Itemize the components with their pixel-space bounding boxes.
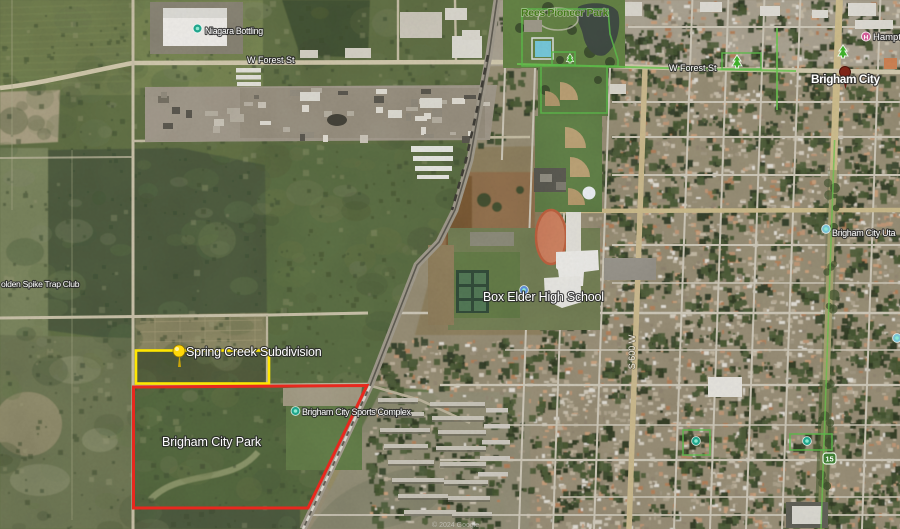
svg-text:Spring Creek Subdivision: Spring Creek Subdivision (186, 345, 322, 359)
svg-text:W Forest St: W Forest St (247, 55, 295, 65)
svg-text:Brigham City Park: Brigham City Park (162, 435, 262, 449)
svg-text:Brigham City Uta: Brigham City Uta (832, 228, 896, 238)
svg-text:S 600 W: S 600 W (627, 334, 637, 369)
svg-text:Hampt: Hampt (873, 32, 900, 43)
svg-text:H: H (864, 35, 869, 42)
svg-text:Box Elder High School: Box Elder High School (483, 290, 604, 304)
svg-text:© 2024 Google: © 2024 Google (432, 521, 479, 529)
svg-text:Rees Pioneer Park: Rees Pioneer Park (521, 7, 609, 19)
svg-text:Brigham City: Brigham City (811, 72, 880, 86)
svg-text:olden Spike Trap Club: olden Spike Trap Club (1, 279, 80, 289)
svg-text:Niagara Bottling: Niagara Bottling (205, 26, 263, 36)
svg-text:W Forest St: W Forest St (669, 63, 717, 73)
svg-text:15: 15 (825, 455, 833, 464)
svg-text:Brigham City Sports Complex: Brigham City Sports Complex (302, 407, 411, 417)
